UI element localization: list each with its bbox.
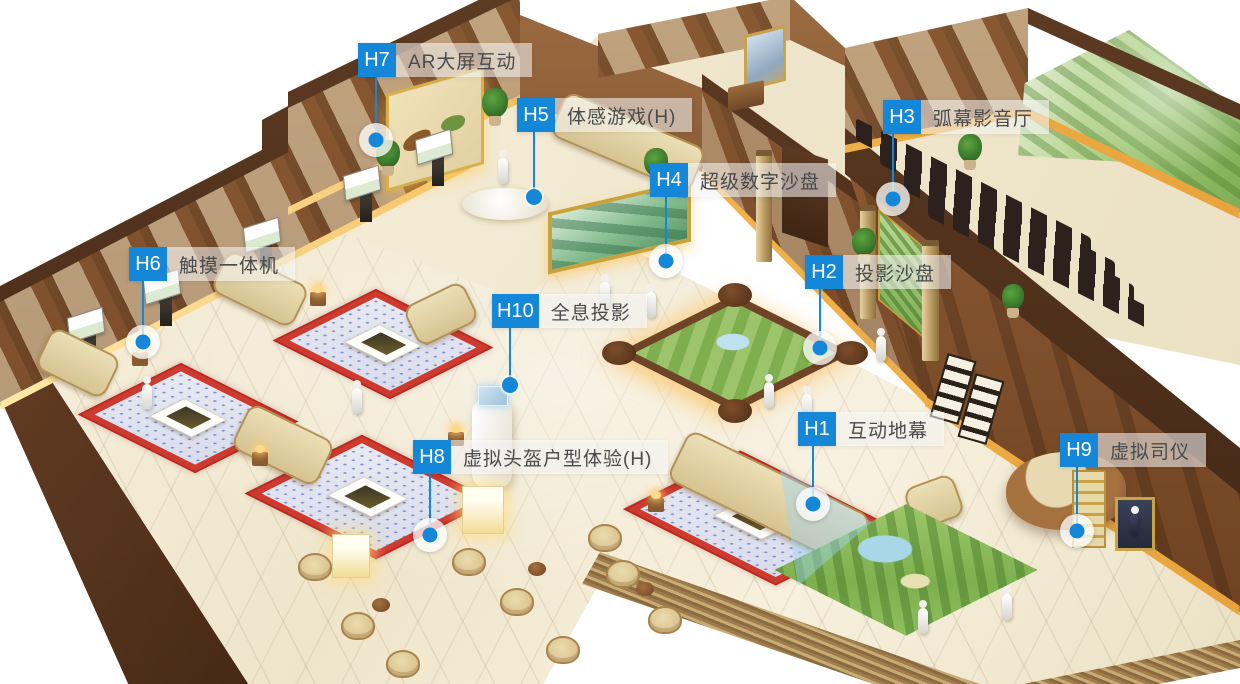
side-table-lamp: [310, 292, 326, 306]
table-corner-pot: [602, 341, 636, 365]
hotspot-marker[interactable]: [1060, 514, 1094, 548]
hotspot-label-row[interactable]: H1 互动地幕: [798, 412, 944, 446]
hotspot-label-row[interactable]: H6 触摸一体机: [129, 247, 295, 281]
coffee-table: [372, 598, 390, 612]
hotspot-badge[interactable]: H10: [492, 294, 539, 328]
virtual-greeter-screen: [1115, 497, 1155, 551]
hotspot-marker[interactable]: [796, 487, 830, 521]
table-screen: [361, 332, 406, 355]
hotspot-marker[interactable]: [876, 182, 910, 216]
armchair: [546, 636, 580, 664]
armchair: [298, 553, 332, 581]
corridor-painting: [744, 25, 786, 91]
hotspot-label-row[interactable]: H2 投影沙盘: [805, 255, 951, 289]
side-table-lamp: [252, 452, 268, 466]
hotspot-badge[interactable]: H6: [129, 247, 167, 281]
hotspot-label: 触摸一体机: [167, 247, 295, 281]
connector-line: [533, 132, 535, 197]
hotspot-label: 虚拟司仪: [1098, 433, 1206, 467]
hotspot-label: 虚拟头盔户型体验(H): [451, 440, 668, 474]
armchair: [500, 588, 534, 616]
coffee-table: [528, 562, 546, 576]
hotspot-label: AR大屏互动: [396, 43, 532, 77]
exhibition-hall-rendering: H1 互动地幕 H2 投影沙盘 H3 弧幕影音厅 H4 超级数字沙盘 H5 体感…: [0, 0, 1240, 684]
hotspot-badge[interactable]: H4: [650, 163, 688, 197]
plant-pot: [964, 160, 976, 170]
hotspot-badge[interactable]: H3: [883, 100, 921, 134]
hotspot-label-row[interactable]: H3 弧幕影音厅: [883, 100, 1049, 134]
dancer-figure: [498, 158, 508, 184]
visitor-figure: [876, 336, 886, 362]
hotspot-label: 全息投影: [539, 294, 647, 328]
hotspot-badge[interactable]: H9: [1060, 433, 1098, 467]
plant-pot: [382, 166, 394, 176]
greeter-figure: [1130, 514, 1138, 536]
table-corner-pot: [718, 399, 752, 423]
plant-pot: [1007, 308, 1019, 318]
armchair: [648, 606, 682, 634]
hotspot-label: 超级数字沙盘: [688, 163, 836, 197]
display-lightbox: [462, 486, 504, 534]
table-screen: [344, 485, 391, 508]
hotspot-label-row[interactable]: H7 AR大屏互动: [358, 43, 532, 77]
visitor-figure: [646, 292, 656, 318]
armchair: [606, 560, 640, 588]
visitor-figure: [1002, 594, 1012, 620]
hotspot-marker[interactable]: [649, 244, 683, 278]
hotspot-label-row[interactable]: H10 全息投影: [492, 294, 647, 328]
visitor-figure: [764, 382, 774, 408]
hotspot-badge[interactable]: H1: [798, 412, 836, 446]
plant-pot: [489, 116, 501, 126]
visitor-figure: [352, 388, 362, 414]
hotspot-marker[interactable]: [502, 377, 518, 393]
armchair: [386, 650, 420, 678]
table-corner-pot: [718, 283, 752, 307]
hotspot-label: 互动地幕: [836, 412, 944, 446]
display-lightbox: [332, 534, 370, 578]
hotspot-badge[interactable]: H2: [805, 255, 843, 289]
hotspot-label: 弧幕影音厅: [921, 100, 1049, 134]
armchair: [341, 612, 375, 640]
visitor-figure: [918, 608, 928, 634]
hotspot-marker[interactable]: [413, 518, 447, 552]
hotspot-label: 体感游戏(H): [555, 98, 692, 132]
hotspot-badge[interactable]: H7: [358, 43, 396, 77]
table-screen: [166, 406, 211, 429]
hotspot-marker[interactable]: [803, 331, 837, 365]
hotspot-label-row[interactable]: H8 虚拟头盔户型体验(H): [413, 440, 668, 474]
hotspot-marker[interactable]: [526, 189, 542, 205]
hotspot-label-row[interactable]: H9 虚拟司仪: [1060, 433, 1206, 467]
hotspot-marker[interactable]: [126, 325, 160, 359]
hotspot-label: 投影沙盘: [843, 255, 951, 289]
hotspot-badge[interactable]: H5: [517, 98, 555, 132]
table-corner-pot: [834, 341, 868, 365]
armchair: [452, 548, 486, 576]
visitor-figure: [142, 384, 152, 410]
hotspot-label-row[interactable]: H5 体感游戏(H): [517, 98, 692, 132]
armchair: [588, 524, 622, 552]
hotspot-label-row[interactable]: H4 超级数字沙盘: [650, 163, 836, 197]
side-table-lamp: [648, 498, 664, 512]
hotspot-marker[interactable]: [359, 123, 393, 157]
hotspot-badge[interactable]: H8: [413, 440, 451, 474]
coffee-table: [636, 582, 654, 596]
